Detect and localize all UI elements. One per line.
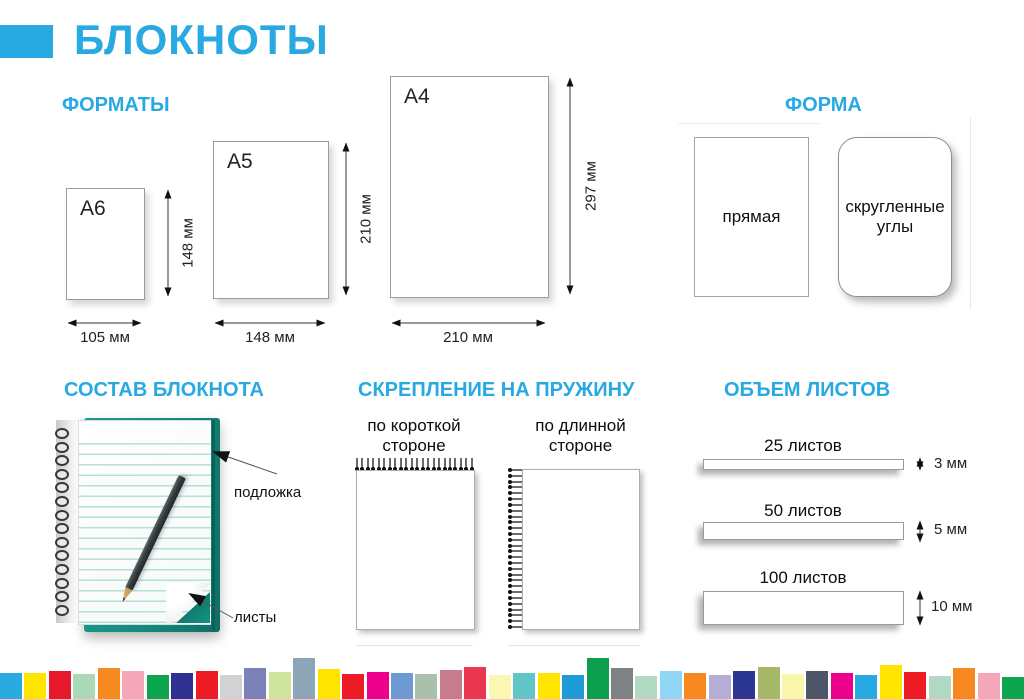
coil-icon — [509, 597, 522, 599]
ring-icon — [55, 550, 69, 561]
coil-icon — [444, 458, 446, 470]
strip-block — [538, 673, 560, 699]
coil-icon — [361, 458, 363, 470]
volume-100-label: 100 листов — [703, 568, 903, 588]
strip-block — [513, 673, 535, 699]
sheet-a6-name: А6 — [80, 197, 106, 221]
coil-icon — [509, 556, 522, 558]
sheet-a4-width-label: 210 мм — [443, 329, 493, 346]
coil-icon — [509, 620, 522, 622]
coil-icon — [509, 550, 522, 552]
coil-icon — [509, 510, 522, 512]
coil-icon — [422, 458, 424, 470]
coil-icon — [356, 458, 358, 470]
volume-50-bar — [703, 522, 904, 540]
coil-icon — [509, 609, 522, 611]
sheet-a6: А6 — [66, 188, 145, 300]
strip-block — [709, 675, 731, 699]
strip-block — [733, 671, 755, 699]
coil-icon — [509, 545, 522, 547]
coil-icon — [378, 458, 380, 470]
coil-icon — [389, 458, 391, 470]
strip-block — [0, 673, 22, 699]
formats-section-title: ФОРМАТЫ — [62, 94, 170, 117]
shape-card-straight: прямая — [694, 137, 809, 297]
sheet-a6-width-label: 105 мм — [80, 329, 130, 346]
strip-block — [587, 658, 609, 699]
coil-icon — [400, 458, 402, 470]
strip-block — [196, 671, 218, 699]
coil-icon — [509, 591, 522, 593]
strip-block — [342, 674, 364, 699]
strip-block — [831, 673, 853, 699]
ring-icon — [55, 523, 69, 534]
coil-icon — [411, 458, 413, 470]
coil-icon — [509, 539, 522, 541]
strip-block — [489, 675, 511, 699]
strip-block — [904, 672, 926, 699]
coil-icon — [509, 533, 522, 535]
strip-block — [415, 674, 437, 699]
volume-25-label: 25 листов — [703, 436, 903, 456]
strip-block — [440, 670, 462, 699]
notepad-short-side — [356, 470, 475, 630]
shape-straight-label: прямая — [722, 207, 780, 227]
spiral-binding-top — [356, 457, 473, 470]
sheet-a5-height-label: 210 мм — [358, 194, 375, 244]
sheet-a5-name: А5 — [227, 150, 253, 174]
sheet-a5: А5 — [213, 141, 329, 299]
volume-50-label: 50 листов — [703, 501, 903, 521]
strip-block — [24, 673, 46, 699]
strip-block — [611, 668, 633, 699]
strip-block — [1002, 677, 1024, 699]
strip-block — [782, 674, 804, 699]
coil-icon — [509, 492, 522, 494]
coil-icon — [454, 458, 456, 470]
ring-icon — [55, 469, 69, 480]
strip-block — [367, 672, 389, 699]
shape-rounded-label: скругленные углы — [845, 197, 944, 238]
title-accent-block — [0, 25, 53, 58]
binding-section-title: СКРЕПЛЕНИЕ НА ПРУЖИНУ — [358, 379, 634, 402]
strip-block — [122, 671, 144, 699]
sheets-label: листы — [234, 609, 276, 626]
sheet-a5-width-label: 148 мм — [245, 329, 295, 346]
faint-underline-pad2 — [508, 645, 640, 646]
faint-divider-horizontal — [678, 123, 820, 124]
ring-icon — [55, 482, 69, 493]
coil-icon — [509, 585, 522, 587]
strip-block — [318, 669, 340, 699]
ring-icon — [55, 428, 69, 439]
coil-icon — [367, 458, 369, 470]
strip-block — [929, 676, 951, 699]
coil-icon — [509, 516, 522, 518]
coil-icon — [509, 579, 522, 581]
spiral-binding-side — [509, 469, 523, 628]
coil-icon — [460, 458, 462, 470]
strip-block — [293, 658, 315, 699]
coil-icon — [383, 458, 385, 470]
ring-icon — [55, 442, 69, 453]
coil-icon — [405, 458, 407, 470]
binding-long-side-label: по длинной стороне — [518, 416, 643, 456]
strip-block — [220, 675, 242, 699]
ring-icon — [55, 564, 69, 575]
coil-icon — [509, 626, 522, 628]
shape-card-rounded: скругленные углы — [838, 137, 952, 297]
ring-icon — [55, 578, 69, 589]
ring-icon — [55, 537, 69, 548]
coil-icon — [509, 504, 522, 506]
strip-block — [49, 671, 71, 699]
footer-color-strip — [0, 657, 1024, 699]
ring-icon — [55, 591, 69, 602]
coil-icon — [471, 458, 473, 470]
strip-block — [244, 668, 266, 699]
strip-block — [171, 673, 193, 699]
strip-block — [953, 668, 975, 699]
strip-block — [684, 673, 706, 699]
coil-icon — [427, 458, 429, 470]
sheet-a4-name: А4 — [404, 85, 430, 109]
composition-section-title: СОСТАВ БЛОКНОТА — [64, 379, 264, 402]
binding-short-side-label: по короткой стороне — [350, 416, 478, 456]
coil-icon — [509, 562, 522, 564]
strip-block — [147, 675, 169, 699]
coil-icon — [465, 458, 467, 470]
sheet-a4: А4 — [390, 76, 549, 298]
coil-icon — [372, 458, 374, 470]
ring-icon — [55, 496, 69, 507]
coil-icon — [509, 614, 522, 616]
notebook-backing-rim — [212, 420, 215, 630]
strip-block — [73, 674, 95, 699]
strip-block — [562, 675, 584, 699]
faint-divider-vertical — [970, 118, 971, 310]
strip-block — [855, 675, 877, 699]
volume-50-thickness: 5 мм — [934, 521, 967, 538]
ring-icon — [55, 510, 69, 521]
strip-block — [269, 672, 291, 699]
backing-label: подложка — [234, 484, 301, 501]
coil-icon — [509, 486, 522, 488]
coil-icon — [509, 498, 522, 500]
coil-icon — [433, 458, 435, 470]
coil-icon — [509, 481, 522, 483]
ring-icon — [55, 605, 69, 616]
faint-underline-pad1 — [356, 645, 473, 646]
coil-icon — [509, 521, 522, 523]
strip-block — [635, 676, 657, 699]
coil-icon — [509, 527, 522, 529]
page-title: БЛОКНОТЫ — [74, 16, 329, 64]
strip-block — [660, 671, 682, 699]
volume-section-title: ОБЪЕМ ЛИСТОВ — [724, 379, 890, 402]
volume-100-bar — [703, 591, 904, 625]
coil-icon — [509, 574, 522, 576]
shape-section-title: ФОРМА — [785, 94, 862, 117]
notepad-long-side — [522, 469, 640, 630]
sheet-a4-height-label: 297 мм — [583, 161, 600, 211]
coil-icon — [509, 603, 522, 605]
strip-block — [758, 667, 780, 699]
coil-icon — [438, 458, 440, 470]
coil-icon — [449, 458, 451, 470]
coil-icon — [416, 458, 418, 470]
notebooks-infographic: БЛОКНОТЫ ФОРМАТЫ А6 А5 А4 105 мм 148 мм … — [0, 0, 1024, 699]
coil-icon — [509, 475, 522, 477]
strip-block — [978, 673, 1000, 699]
volume-25-thickness: 3 мм — [934, 455, 967, 472]
coil-icon — [509, 568, 522, 570]
coil-icon — [509, 469, 522, 471]
strip-block — [464, 667, 486, 699]
sheet-a6-height-label: 148 мм — [180, 218, 197, 268]
spiral-rings — [55, 428, 71, 616]
coil-icon — [394, 458, 396, 470]
strip-block — [391, 673, 413, 699]
ring-icon — [55, 455, 69, 466]
strip-block — [880, 665, 902, 699]
strip-block — [806, 671, 828, 699]
volume-25-bar — [703, 459, 904, 470]
strip-block — [98, 668, 120, 699]
annotation-arrow-backing — [214, 452, 277, 474]
volume-100-thickness: 10 мм — [931, 598, 972, 615]
